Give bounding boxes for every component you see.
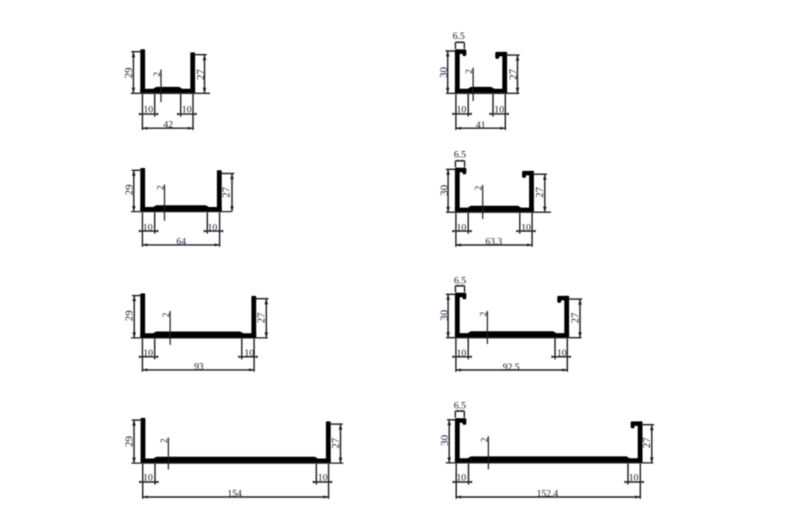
svg-text:10: 10	[208, 222, 218, 233]
svg-text:30: 30	[438, 310, 450, 321]
svg-text:42: 42	[163, 119, 173, 130]
svg-text:27: 27	[569, 312, 581, 323]
svg-text:10: 10	[318, 472, 328, 483]
svg-text:27: 27	[195, 69, 207, 80]
svg-text:29: 29	[123, 310, 135, 321]
svg-text:27: 27	[641, 437, 653, 448]
svg-text:93: 93	[194, 362, 204, 373]
svg-text:2: 2	[155, 185, 165, 190]
svg-text:154: 154	[227, 489, 242, 500]
svg-text:10: 10	[143, 348, 153, 359]
svg-text:152.4: 152.4	[537, 489, 559, 500]
svg-text:10: 10	[494, 104, 504, 115]
svg-text:6.5: 6.5	[453, 31, 465, 42]
svg-text:27: 27	[508, 68, 520, 79]
svg-text:2: 2	[478, 311, 488, 316]
svg-text:10: 10	[456, 472, 466, 483]
svg-text:27: 27	[256, 312, 268, 323]
svg-text:29: 29	[123, 67, 135, 78]
svg-text:2: 2	[161, 312, 171, 317]
svg-text:10: 10	[143, 105, 153, 116]
svg-text:6.5: 6.5	[454, 149, 466, 160]
svg-text:10: 10	[143, 222, 153, 233]
svg-text:64: 64	[176, 236, 186, 247]
svg-text:63.3: 63.3	[485, 237, 502, 248]
svg-text:2: 2	[474, 185, 484, 190]
svg-text:10: 10	[557, 348, 567, 359]
svg-text:29: 29	[123, 185, 135, 196]
svg-text:27: 27	[534, 186, 546, 197]
svg-text:10: 10	[521, 222, 531, 233]
svg-text:10: 10	[143, 472, 153, 483]
svg-text:27: 27	[221, 186, 233, 197]
svg-text:6.5: 6.5	[454, 400, 466, 411]
svg-text:2: 2	[479, 437, 489, 442]
svg-text:2: 2	[464, 69, 474, 74]
svg-text:10: 10	[457, 222, 467, 233]
svg-text:2: 2	[152, 72, 162, 77]
svg-text:27: 27	[330, 437, 342, 448]
svg-text:10: 10	[629, 472, 639, 483]
svg-text:10: 10	[244, 348, 254, 359]
svg-text:2: 2	[159, 438, 169, 443]
svg-text:30: 30	[439, 435, 451, 446]
svg-text:10: 10	[457, 104, 467, 115]
svg-text:41: 41	[476, 120, 486, 131]
svg-text:29: 29	[124, 436, 136, 447]
svg-text:30: 30	[438, 185, 450, 196]
svg-text:6.5: 6.5	[454, 276, 466, 287]
svg-text:10: 10	[457, 348, 467, 359]
svg-text:10: 10	[182, 105, 192, 116]
svg-text:92.5: 92.5	[503, 362, 520, 373]
svg-text:30: 30	[438, 67, 450, 78]
